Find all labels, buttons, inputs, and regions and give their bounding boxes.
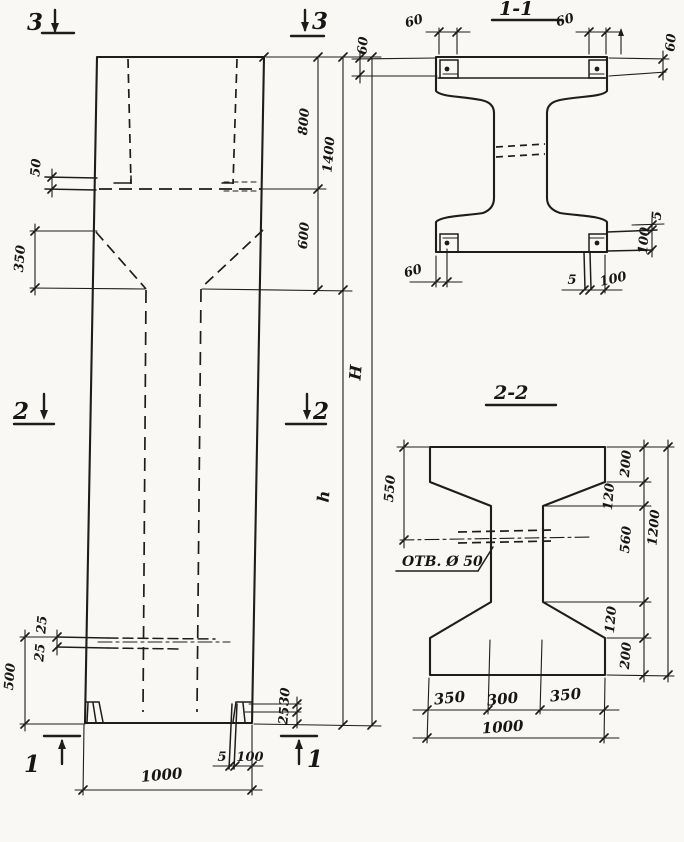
dim-60-left: 60 [355,36,372,55]
dim-lip-25: 25 [276,706,293,726]
dim-plate-thk-5: 5 [217,750,226,765]
dim-60-right: 60 [663,33,680,52]
hole-label: ОТВ. Ø 50 [402,554,483,570]
dim-120-bottom: 120 [603,606,620,634]
dim-100-side: 100 [636,227,653,255]
section-marker-3-left: 3 [27,9,43,36]
section-marker-2-left: 2 [12,398,29,425]
dim-lip-30: 30 [277,687,294,706]
dim-plate-50: 50 [28,158,45,177]
section-marker-2-right: 2 [312,398,329,425]
section-1-1-title: 1-1 [499,0,533,20]
dim-200-top: 200 [618,450,635,479]
dim-200-bottom: 200 [618,642,635,671]
dim-hole-25a: 25 [34,615,51,635]
dim-head-total-1400: 1400 [320,136,338,173]
section-marker-1-right: 1 [307,746,323,773]
section-2-2-title: 2-2 [493,382,528,404]
dim-total-H: H [345,363,365,382]
dim-120-top: 120 [601,483,618,511]
dim-550: 550 [382,475,399,503]
dim-width-1000: 1000 [140,764,184,786]
dim-taper-350: 350 [12,245,29,273]
dim-hole-25b: 25 [32,643,49,663]
section-marker-3-right: 3 [312,8,328,35]
dim-1000-width: 1000 [481,717,524,738]
dim-neck-600: 600 [296,222,313,250]
dim-5-bottom: 5 [567,273,576,288]
dim-560: 560 [618,526,635,554]
dim-300-mid: 300 [486,688,520,709]
paper-background [0,0,684,842]
dim-shaft-h: h [314,490,334,503]
dim-head-800: 800 [296,108,313,136]
dim-base-500: 500 [2,663,19,691]
dim-350-right: 350 [549,684,583,705]
dim-350-left: 350 [433,687,467,708]
dim-plate-off-100: 100 [236,750,263,765]
technical-drawing: 50 350 25 25 500 800 600 1400 h H 30 25 … [0,0,684,842]
dim-1200: 1200 [645,509,663,546]
dim-5-side: 5 [650,211,666,221]
section-marker-1-left: 1 [24,751,40,778]
